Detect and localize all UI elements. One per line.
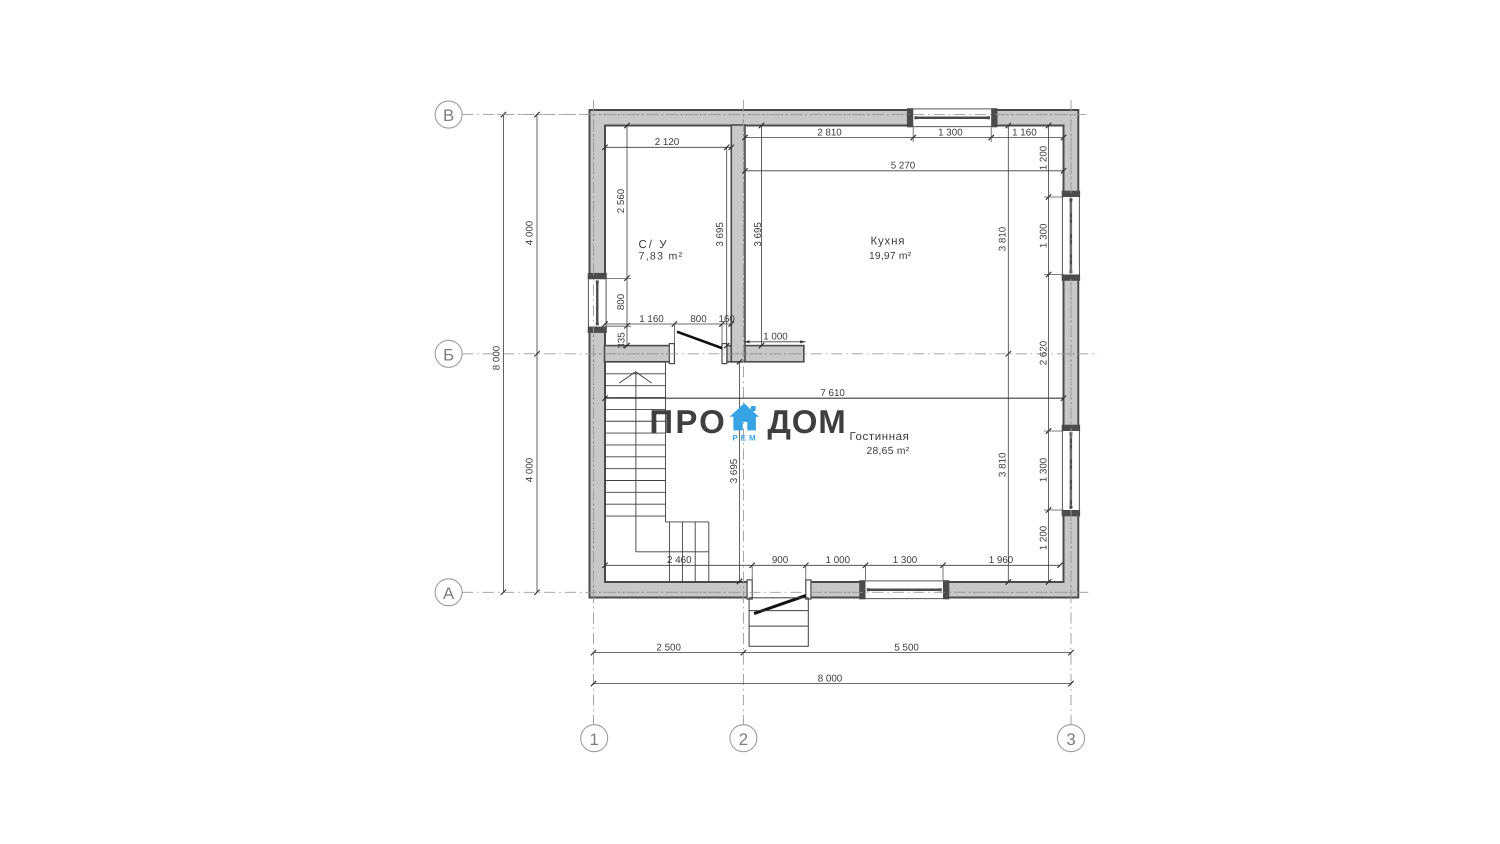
svg-text:800: 800 xyxy=(690,314,707,325)
svg-text:335: 335 xyxy=(617,332,628,349)
svg-text:19,97 m²: 19,97 m² xyxy=(869,251,912,262)
svg-text:800: 800 xyxy=(616,293,627,310)
svg-text:1 960: 1 960 xyxy=(989,555,1014,566)
svg-text:С/ У: С/ У xyxy=(639,239,669,251)
svg-text:1 300: 1 300 xyxy=(1038,223,1049,248)
svg-text:РЕМ: РЕМ xyxy=(732,434,758,443)
svg-text:1 300: 1 300 xyxy=(1038,457,1049,482)
svg-text:2 120: 2 120 xyxy=(655,137,680,148)
svg-text:3 695: 3 695 xyxy=(715,222,726,247)
svg-text:7,83 m²: 7,83 m² xyxy=(639,251,684,263)
svg-text:1 160: 1 160 xyxy=(1012,127,1037,138)
svg-text:ПРО: ПРО xyxy=(649,403,727,440)
svg-text:7 610: 7 610 xyxy=(820,388,845,399)
svg-text:28,65 m²: 28,65 m² xyxy=(866,446,909,457)
svg-text:1 000: 1 000 xyxy=(826,555,851,566)
svg-text:8 000: 8 000 xyxy=(818,674,843,685)
svg-text:Кухня: Кухня xyxy=(871,235,906,247)
svg-text:5 500: 5 500 xyxy=(894,643,919,654)
svg-text:2 460: 2 460 xyxy=(667,555,692,566)
svg-text:5 270: 5 270 xyxy=(891,161,916,172)
svg-text:1 160: 1 160 xyxy=(639,314,664,325)
svg-text:8 000: 8 000 xyxy=(492,345,503,370)
svg-text:2 500: 2 500 xyxy=(656,643,681,654)
svg-text:1 000: 1 000 xyxy=(763,332,788,343)
svg-text:ДОМ: ДОМ xyxy=(767,403,846,440)
svg-text:1 300: 1 300 xyxy=(938,127,963,138)
svg-text:В: В xyxy=(443,106,454,125)
svg-text:Гостинная: Гостинная xyxy=(849,431,909,443)
svg-text:Б: Б xyxy=(443,345,454,364)
svg-text:3 695: 3 695 xyxy=(729,458,740,483)
svg-text:4 000: 4 000 xyxy=(525,457,536,482)
svg-text:А: А xyxy=(443,584,455,603)
svg-text:2 560: 2 560 xyxy=(616,188,627,213)
svg-text:3 810: 3 810 xyxy=(997,452,1008,477)
svg-text:1 200: 1 200 xyxy=(1038,145,1049,170)
svg-text:3: 3 xyxy=(1066,730,1075,749)
svg-text:3 810: 3 810 xyxy=(997,226,1008,251)
svg-text:1 300: 1 300 xyxy=(893,555,918,566)
svg-text:4 000: 4 000 xyxy=(525,220,536,245)
svg-text:2: 2 xyxy=(739,730,748,749)
svg-text:2 810: 2 810 xyxy=(817,127,842,138)
svg-text:2 620: 2 620 xyxy=(1038,340,1049,365)
svg-text:3 695: 3 695 xyxy=(753,222,764,247)
svg-text:1: 1 xyxy=(590,730,599,749)
svg-text:1 200: 1 200 xyxy=(1038,525,1049,550)
svg-text:900: 900 xyxy=(772,555,789,566)
